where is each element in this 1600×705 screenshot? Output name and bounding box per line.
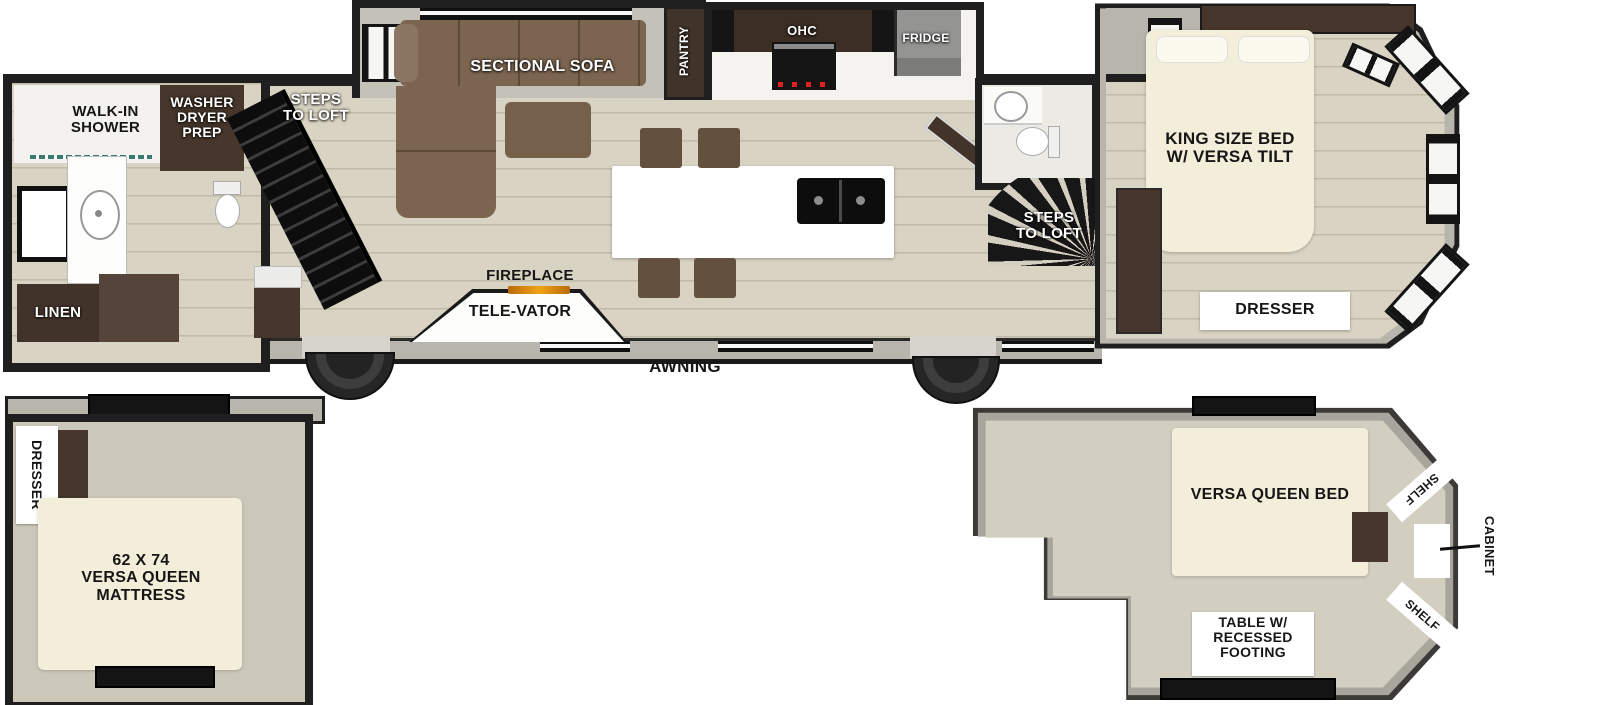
fridge-label: FRIDGE [894, 32, 958, 45]
loft-right-nightstand [1352, 512, 1388, 562]
bath-toilet-bowl [215, 194, 240, 228]
entry-steps-2 [912, 356, 1000, 404]
fireplace-flame [508, 286, 570, 294]
awning-label: AWNING [620, 358, 750, 376]
loft-left-skylight [88, 394, 230, 416]
floorplan-canvas: AWNING WALK-IN SHOWER WASHER DRYER PREP … [0, 0, 1600, 705]
bedroom-dresser-label: DRESSER [1200, 301, 1350, 318]
ottoman [505, 102, 591, 158]
pantry-label: PANTRY [668, 14, 700, 88]
loft-right-vent [1160, 678, 1336, 700]
half-bath-toilet-bowl [1016, 127, 1049, 156]
bath-toilet-tank [213, 181, 241, 195]
loft-left-mattress-label: 62 X 74 VERSA QUEEN MATTRESS [52, 552, 230, 604]
vestibule-shelf [254, 266, 302, 288]
half-bath-sink [994, 91, 1028, 122]
kitchen-ohc-endcap-right [872, 10, 894, 52]
bedroom-wardrobe-lower [1116, 188, 1162, 334]
king-bed-label: KING SIZE BED W/ VERSA TILT [1130, 130, 1330, 167]
half-bath-toilet-tank [1048, 126, 1060, 158]
loft-right-skylight [1192, 396, 1316, 416]
walk-in-shower-label: WALK-IN SHOWER [48, 104, 163, 136]
bedroom-bay-window-mid [1426, 134, 1460, 224]
stool-3 [638, 258, 680, 298]
bath-sink-drain [95, 210, 102, 217]
loft-right-cabinet-label: CABINET [1478, 500, 1500, 592]
bottom-window-2 [718, 341, 873, 352]
island-sink-divider [839, 180, 842, 222]
linen-label: LINEN [22, 305, 94, 321]
stove-knobs [778, 82, 832, 87]
fireplace-label: FIREPLACE [462, 268, 598, 284]
televator-label: TELE-VATOR [452, 303, 588, 320]
loft-right-table-label: TABLE W/ RECESSED FOOTING [1192, 615, 1314, 660]
loft-right-bed-label: VERSA QUEEN BED [1175, 486, 1365, 503]
loft-left-vent [95, 666, 215, 688]
island-sink-drain-right [856, 196, 865, 205]
king-bed-pillow-left [1156, 36, 1228, 63]
stool-2 [698, 128, 740, 168]
kitchen-ohc-endcap-left [712, 10, 734, 52]
bottom-window-3 [1002, 341, 1094, 352]
sectional-sofa-back [400, 20, 646, 86]
front-steps-label: STEPS TO LOFT [996, 210, 1102, 242]
vestibule-cabinet [254, 288, 300, 338]
entry-door-2 [910, 336, 996, 358]
sectional-sofa-chaise [396, 86, 496, 218]
sectional-sofa-armrest [394, 24, 418, 82]
bath-window [17, 186, 71, 262]
stool-4 [694, 258, 736, 298]
entry-steps-1 [305, 352, 395, 400]
stool-1 [640, 128, 682, 168]
sectional-sofa-label: SECTIONAL SOFA [445, 58, 640, 75]
stove-vent-strip [774, 44, 834, 49]
bath-side-cabinet [99, 274, 179, 342]
loft-right-cabinet [1414, 524, 1450, 578]
ohc-label: OHC [762, 24, 842, 38]
king-bed-pillow-right [1238, 36, 1310, 63]
bottom-window-1 [540, 341, 630, 352]
island-sink-drain-left [814, 196, 823, 205]
